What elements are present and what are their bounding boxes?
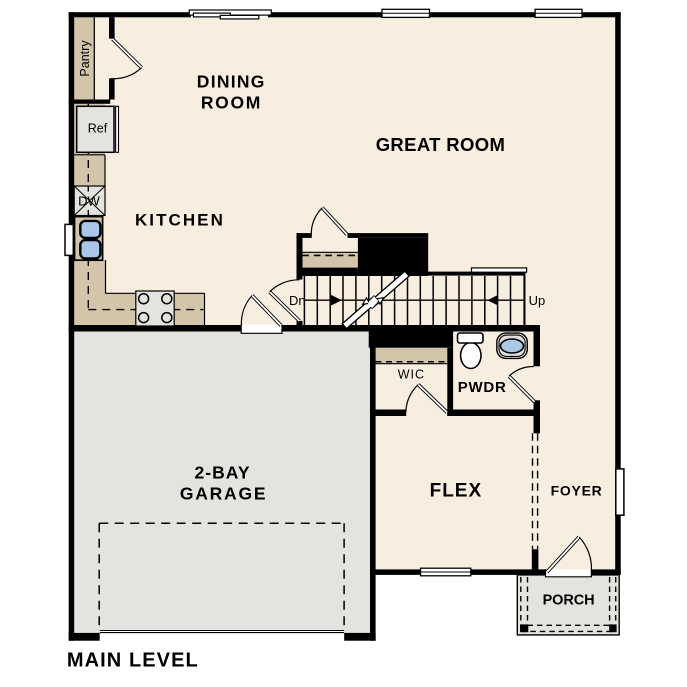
svg-text:Pantry: Pantry: [78, 40, 92, 77]
svg-text:DW: DW: [78, 194, 100, 209]
svg-text:ROOM: ROOM: [201, 93, 260, 113]
svg-text:Dn: Dn: [289, 293, 306, 308]
svg-text:Up: Up: [529, 293, 546, 308]
svg-text:PWDR: PWDR: [458, 379, 506, 396]
svg-text:MAIN LEVEL: MAIN LEVEL: [67, 649, 198, 671]
svg-text:WIC: WIC: [398, 367, 424, 381]
svg-text:PORCH: PORCH: [543, 592, 595, 608]
svg-text:FOYER: FOYER: [551, 483, 602, 499]
svg-text:Ref: Ref: [88, 122, 108, 136]
svg-text:DINING: DINING: [197, 72, 265, 92]
svg-text:FLEX: FLEX: [430, 480, 482, 501]
svg-text:2-BAY: 2-BAY: [195, 463, 250, 483]
svg-text:GREAT ROOM: GREAT ROOM: [376, 134, 505, 155]
